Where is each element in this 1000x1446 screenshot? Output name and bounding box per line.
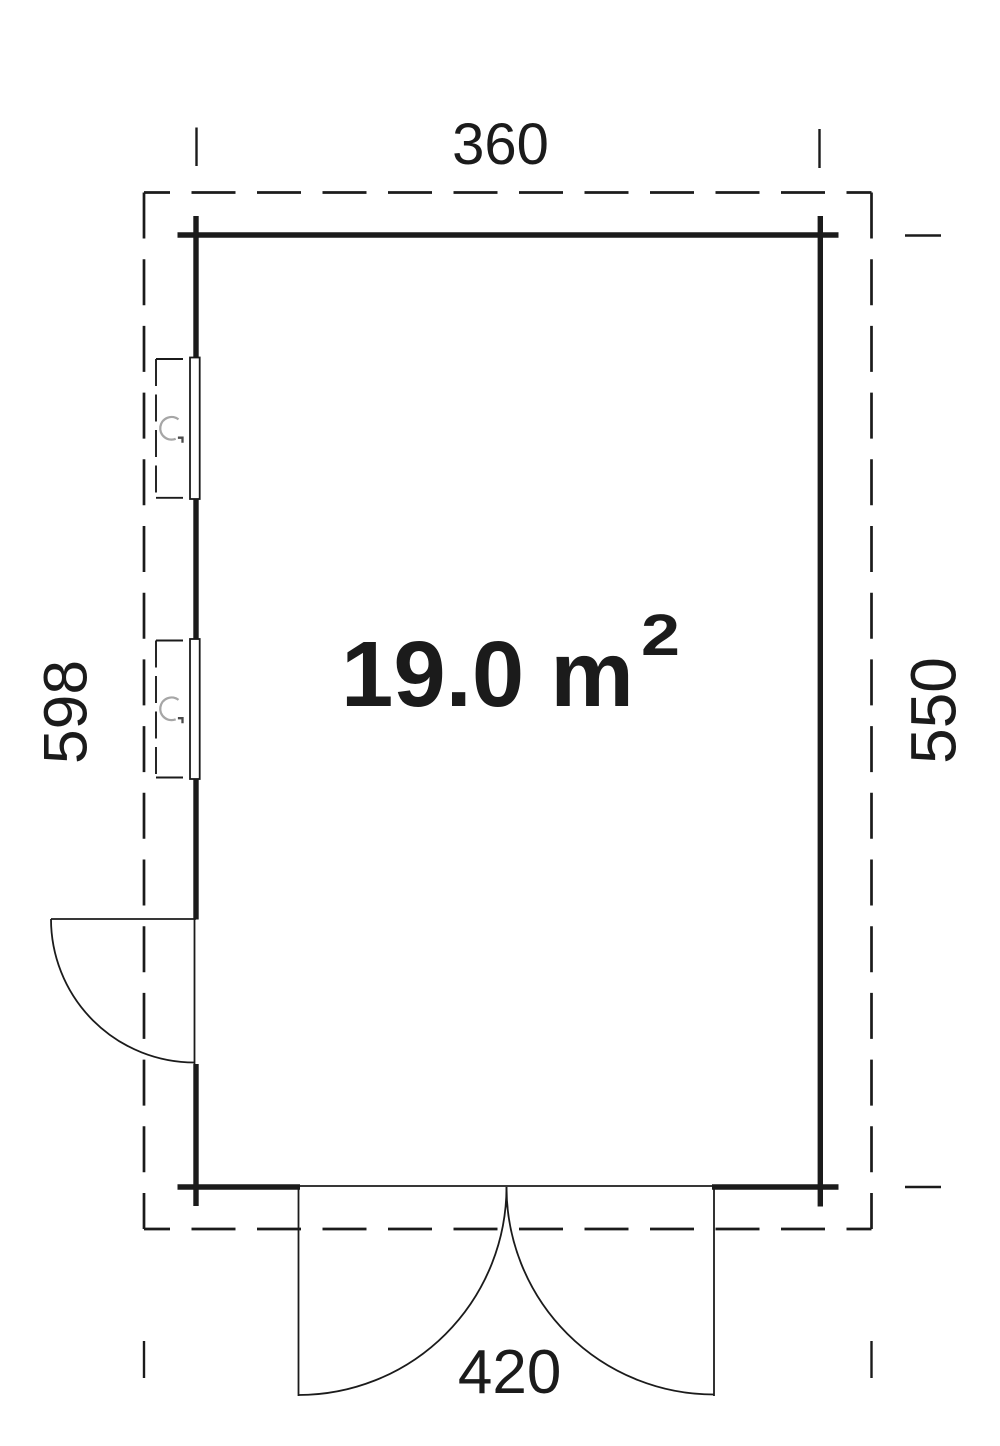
svg-text:550: 550 [898,657,970,764]
svg-text:2: 2 [641,603,680,668]
svg-text:598: 598 [32,660,100,764]
svg-text:360: 360 [452,112,549,177]
svg-text:19.0 m: 19.0 m [341,622,634,726]
svg-text:420: 420 [458,1338,561,1407]
